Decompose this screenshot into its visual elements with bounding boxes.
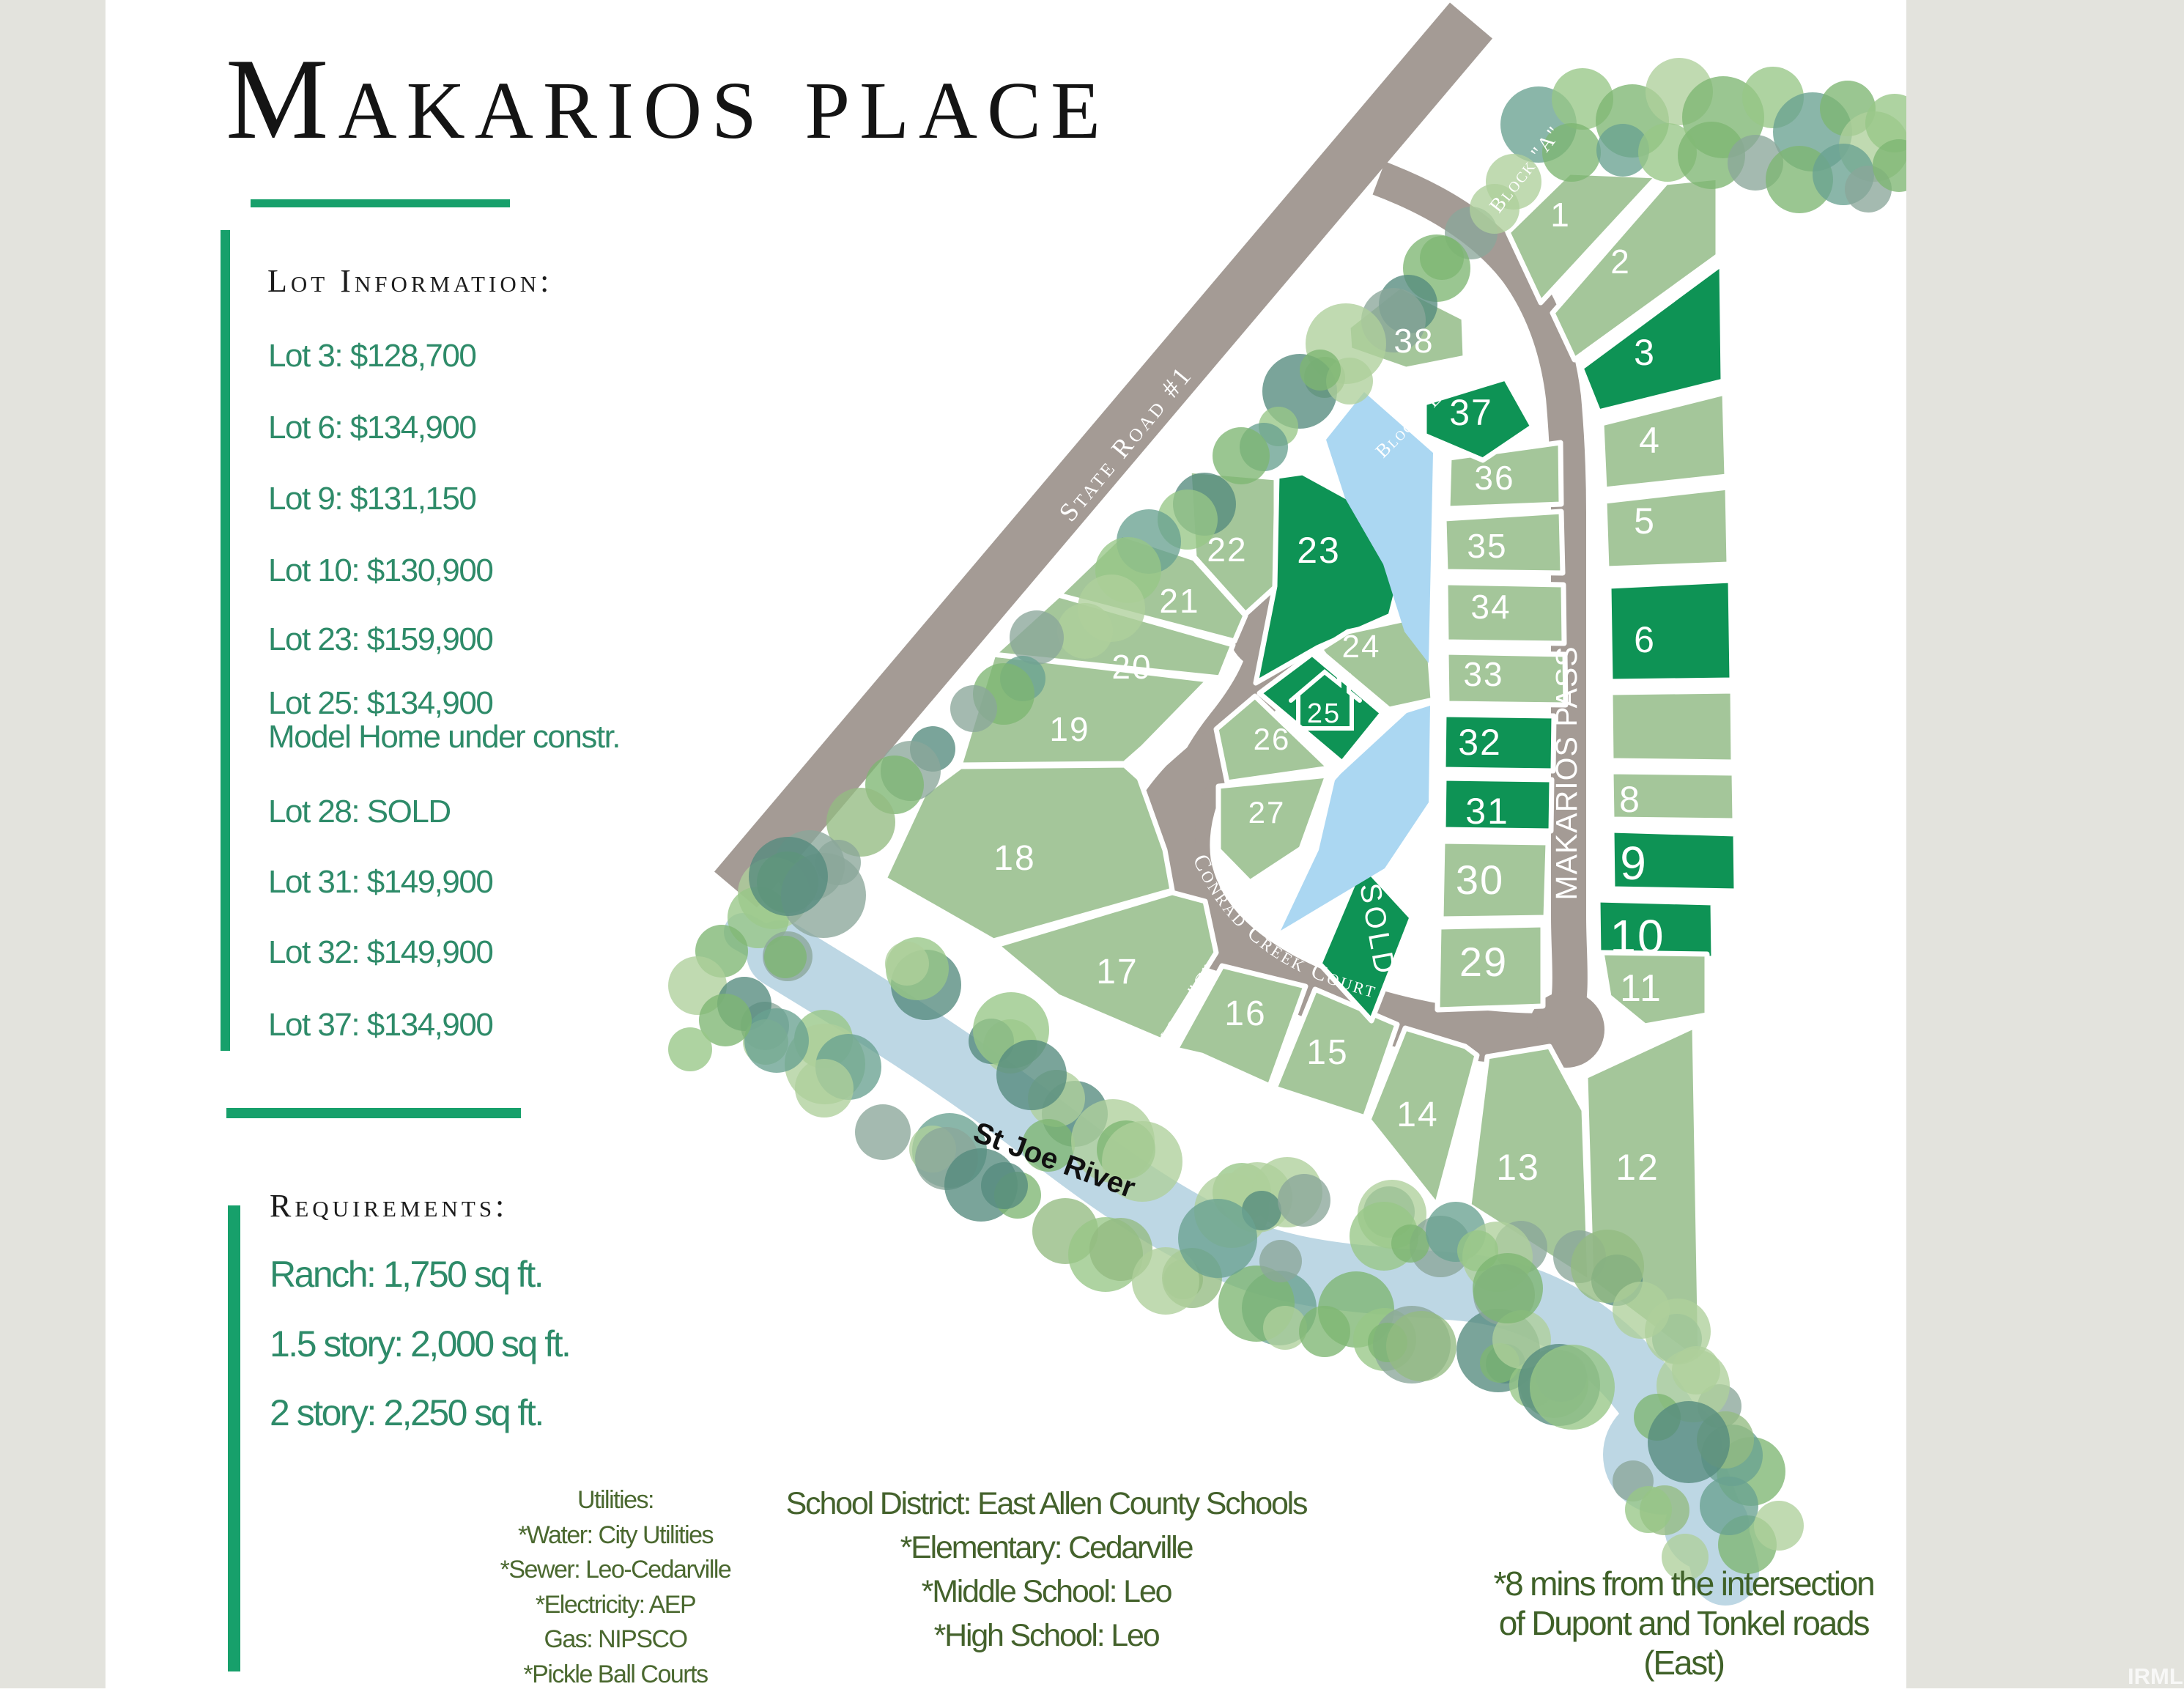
svg-text:Block "B": Block "B" (1603, 564, 1711, 588)
svg-text:20: 20 (1111, 648, 1152, 686)
svg-text:18: 18 (993, 839, 1035, 878)
svg-text:6: 6 (1634, 619, 1656, 660)
svg-text:35: 35 (1467, 527, 1507, 565)
svg-text:31: 31 (1465, 791, 1509, 832)
svg-text:11: 11 (1620, 967, 1662, 1010)
svg-text:12: 12 (1615, 1147, 1659, 1188)
svg-text:4: 4 (1639, 420, 1661, 461)
svg-text:30: 30 (1456, 857, 1504, 903)
svg-text:26: 26 (1254, 722, 1291, 756)
svg-text:9: 9 (1620, 837, 1648, 890)
svg-text:8: 8 (1619, 779, 1641, 820)
svg-text:27: 27 (1248, 795, 1286, 830)
svg-text:MAKARIOS PASS: MAKARIOS PASS (1550, 646, 1583, 900)
svg-text:36: 36 (1474, 459, 1514, 497)
svg-text:29: 29 (1459, 939, 1508, 985)
svg-text:32: 32 (1458, 722, 1502, 763)
svg-text:10: 10 (1610, 910, 1665, 963)
svg-text:17: 17 (1096, 953, 1138, 991)
svg-text:24: 24 (1342, 629, 1381, 665)
svg-text:23: 23 (1297, 530, 1341, 571)
svg-text:2: 2 (1610, 243, 1631, 281)
svg-text:25: 25 (1307, 698, 1341, 729)
svg-text:14: 14 (1396, 1096, 1438, 1134)
svg-text:22: 22 (1207, 531, 1247, 569)
svg-text:1: 1 (1550, 196, 1571, 234)
svg-text:38: 38 (1393, 322, 1434, 360)
svg-text:5: 5 (1634, 500, 1656, 542)
svg-text:19: 19 (1049, 710, 1089, 748)
svg-text:21: 21 (1159, 582, 1199, 620)
svg-text:15: 15 (1306, 1033, 1348, 1072)
svg-text:37: 37 (1449, 392, 1493, 433)
svg-text:13: 13 (1496, 1147, 1540, 1188)
svg-text:33: 33 (1463, 655, 1503, 693)
svg-text:34: 34 (1470, 588, 1511, 626)
svg-text:16: 16 (1224, 994, 1266, 1033)
svg-text:3: 3 (1634, 332, 1656, 373)
